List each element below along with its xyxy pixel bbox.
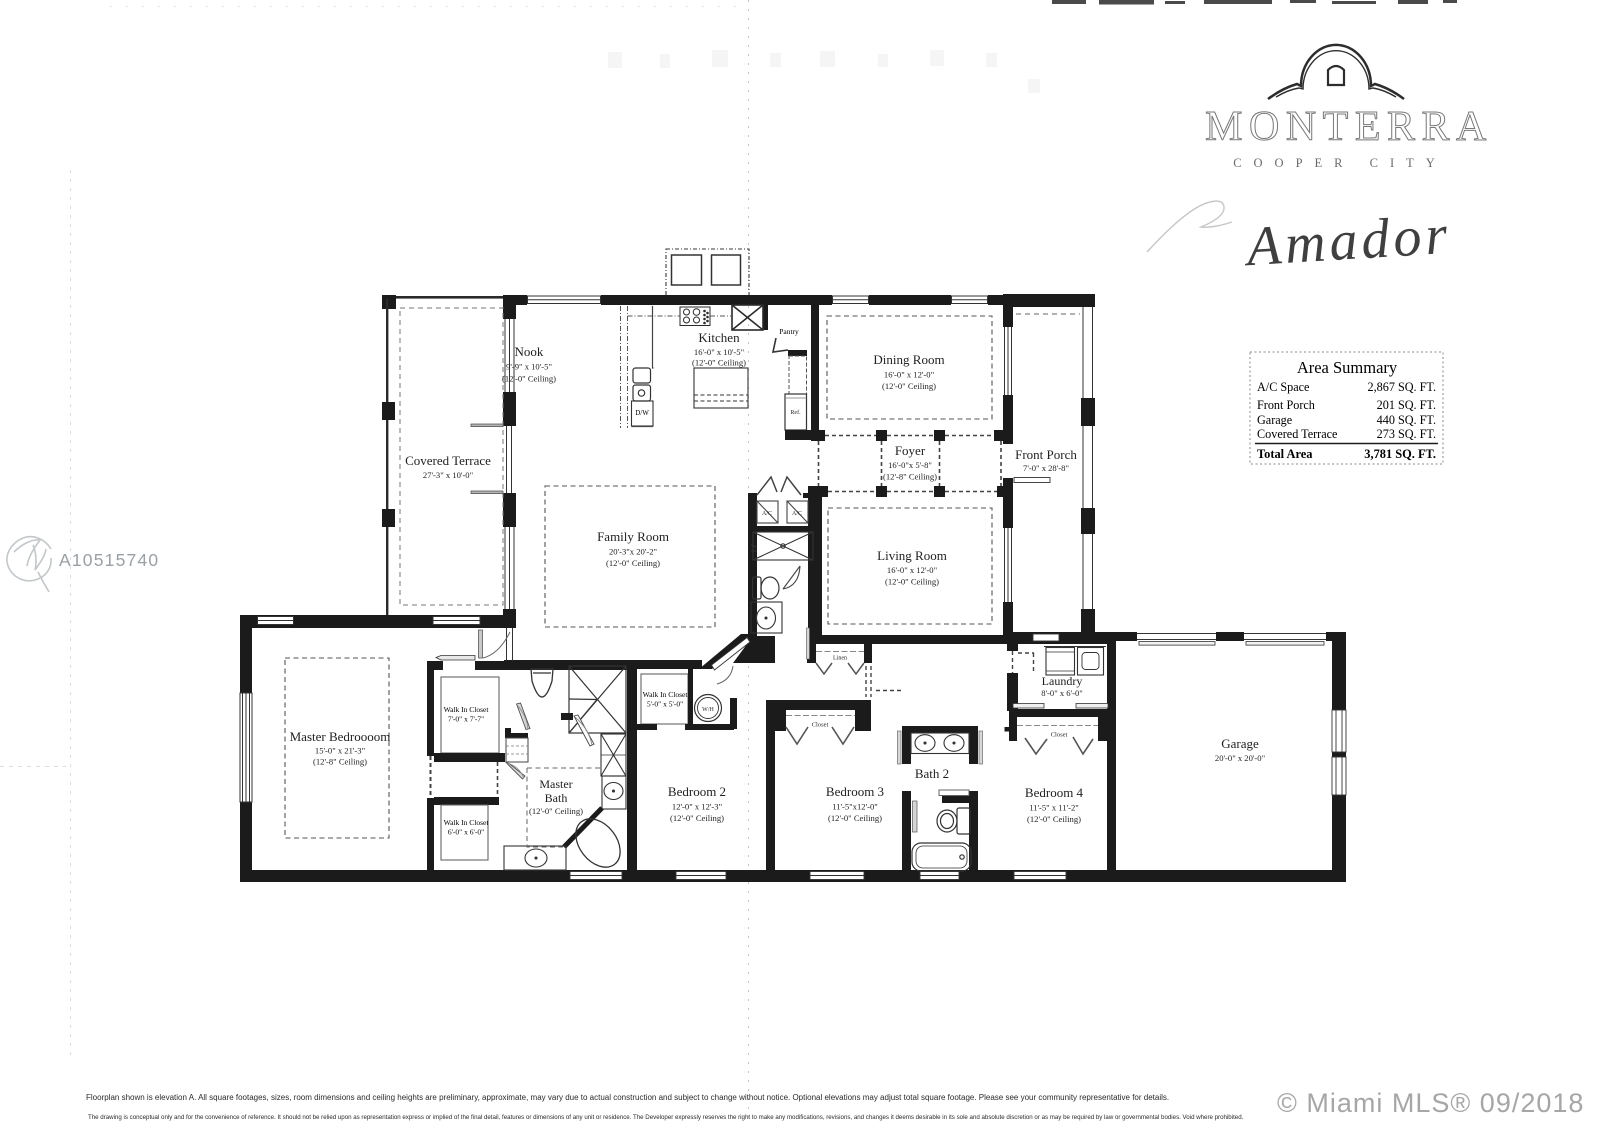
svg-text:Family Room: Family Room (597, 529, 669, 544)
svg-text:Linen: Linen (833, 656, 847, 662)
svg-text:11'-5"x12'-0": 11'-5"x12'-0" (832, 802, 878, 812)
svg-text:Laundry: Laundry (1042, 674, 1083, 688)
svg-text:Bedroom 4: Bedroom 4 (1025, 785, 1084, 800)
svg-text:A10515740: A10515740 (59, 550, 159, 570)
svg-text:Covered Terrace: Covered Terrace (1257, 427, 1337, 441)
svg-text:Closet: Closet (1051, 732, 1068, 739)
svg-text:© Miami MLS® 09/2018: © Miami MLS® 09/2018 (1277, 1088, 1584, 1118)
svg-text:MONTERRA: MONTERRA (1205, 104, 1493, 150)
svg-text:12'-0" x 12'-3": 12'-0" x 12'-3" (672, 802, 722, 812)
svg-text:2,867 SQ. FT.: 2,867 SQ. FT. (1367, 380, 1436, 394)
svg-text:(12'-0" Ceiling): (12'-0" Ceiling) (502, 374, 556, 384)
svg-text:Bath: Bath (545, 791, 568, 805)
svg-text:273 SQ. FT.: 273 SQ. FT. (1377, 427, 1436, 441)
svg-text:Pantry: Pantry (779, 327, 799, 336)
svg-text:(12'-8" Ceiling): (12'-8" Ceiling) (883, 472, 937, 482)
svg-text:COOPER CITY: COOPER CITY (1233, 156, 1447, 170)
svg-text:16'-0" x 12'-0": 16'-0" x 12'-0" (887, 565, 937, 575)
svg-text:Walk In Closet: Walk In Closet (444, 818, 490, 827)
svg-text:(12'-0" Ceiling): (12'-0" Ceiling) (692, 358, 746, 368)
svg-text:7'-0" x 7'-7": 7'-0" x 7'-7" (448, 715, 484, 724)
svg-text:Walk In Closet: Walk In Closet (643, 690, 689, 699)
svg-text:Kitchen: Kitchen (698, 330, 740, 345)
svg-text:A/C: A/C (762, 511, 772, 517)
svg-text:The drawing is conceptual only: The drawing is conceptual only and for t… (88, 1114, 1244, 1121)
svg-text:8'-0" x 6'-0": 8'-0" x 6'-0" (1041, 688, 1083, 698)
svg-text:Front Porch: Front Porch (1015, 447, 1077, 462)
svg-text:(12'-8" Ceiling): (12'-8" Ceiling) (313, 757, 367, 767)
svg-text:A/C: A/C (792, 511, 802, 517)
svg-text:27'-3" x 10'-0": 27'-3" x 10'-0" (423, 470, 473, 480)
svg-text:Covered Terrace: Covered Terrace (405, 453, 491, 468)
svg-text:Bedroom 2: Bedroom 2 (668, 784, 726, 799)
svg-text:5'-0" x 5'-0": 5'-0" x 5'-0" (647, 700, 683, 709)
svg-text:3,781 SQ. FT.: 3,781 SQ. FT. (1364, 447, 1436, 461)
svg-text:Total Area: Total Area (1257, 447, 1312, 461)
svg-text:Bedroom 3: Bedroom 3 (826, 784, 884, 799)
svg-text:(12'-0" Ceiling): (12'-0" Ceiling) (828, 813, 882, 823)
svg-text:16'-0" x 10'-5": 16'-0" x 10'-5" (694, 347, 744, 357)
svg-text:Foyer: Foyer (895, 443, 926, 458)
svg-text:Closet: Closet (812, 722, 829, 729)
svg-text:20'-3"x 20'-2": 20'-3"x 20'-2" (609, 547, 657, 557)
svg-text:201 SQ. FT.: 201 SQ. FT. (1377, 398, 1436, 412)
svg-text:(12'-0" Ceiling): (12'-0" Ceiling) (529, 806, 583, 816)
svg-text:Bath 2: Bath 2 (915, 766, 949, 781)
svg-text:(12'-0" Ceiling): (12'-0" Ceiling) (1027, 814, 1081, 824)
svg-text:Garage: Garage (1221, 736, 1259, 751)
svg-text:16'-0"x 5'-8": 16'-0"x 5'-8" (888, 460, 932, 470)
svg-text:D/W: D/W (635, 409, 649, 417)
svg-text:Dining Room: Dining Room (873, 352, 944, 367)
svg-text:(12'-0" Ceiling): (12'-0" Ceiling) (670, 813, 724, 823)
svg-text:15'-0" x 21'-3": 15'-0" x 21'-3" (315, 746, 365, 756)
svg-text:6'-0" x 6'-0": 6'-0" x 6'-0" (448, 828, 484, 837)
svg-text:Floorplan shown is elevation A: Floorplan shown is elevation A. All squa… (86, 1093, 1169, 1102)
svg-text:(12'-0" Ceiling): (12'-0" Ceiling) (885, 577, 939, 587)
svg-text:Front Porch: Front Porch (1257, 398, 1315, 412)
svg-text:Area Summary: Area Summary (1297, 358, 1398, 377)
svg-text:Master Bedroooom: Master Bedroooom (290, 729, 391, 744)
svg-text:Master: Master (539, 777, 572, 791)
svg-text:Garage: Garage (1257, 413, 1292, 427)
svg-text:Amador: Amador (1241, 204, 1453, 279)
svg-text:Ref.: Ref. (790, 409, 801, 416)
svg-text:440 SQ. FT.: 440 SQ. FT. (1377, 413, 1436, 427)
svg-text:(12'-0" Ceiling): (12'-0" Ceiling) (606, 558, 660, 568)
svg-text:W/H: W/H (702, 707, 714, 713)
svg-text:A/C Space: A/C Space (1257, 380, 1309, 394)
svg-text:(12'-0" Ceiling): (12'-0" Ceiling) (882, 381, 936, 391)
svg-text:Nook: Nook (515, 344, 544, 359)
svg-text:11'-5" x 11'-2": 11'-5" x 11'-2" (1029, 803, 1079, 813)
svg-text:16'-0" x 12'-0": 16'-0" x 12'-0" (884, 370, 934, 380)
svg-text:20'-0" x 20'-0": 20'-0" x 20'-0" (1215, 753, 1265, 763)
svg-text:7'-0" x 28'-8": 7'-0" x 28'-8" (1023, 463, 1069, 473)
svg-text:9'-9" x 10'-5": 9'-9" x 10'-5" (506, 362, 552, 372)
svg-text:Walk In Closet: Walk In Closet (444, 705, 490, 714)
svg-text:Living Room: Living Room (877, 548, 947, 563)
